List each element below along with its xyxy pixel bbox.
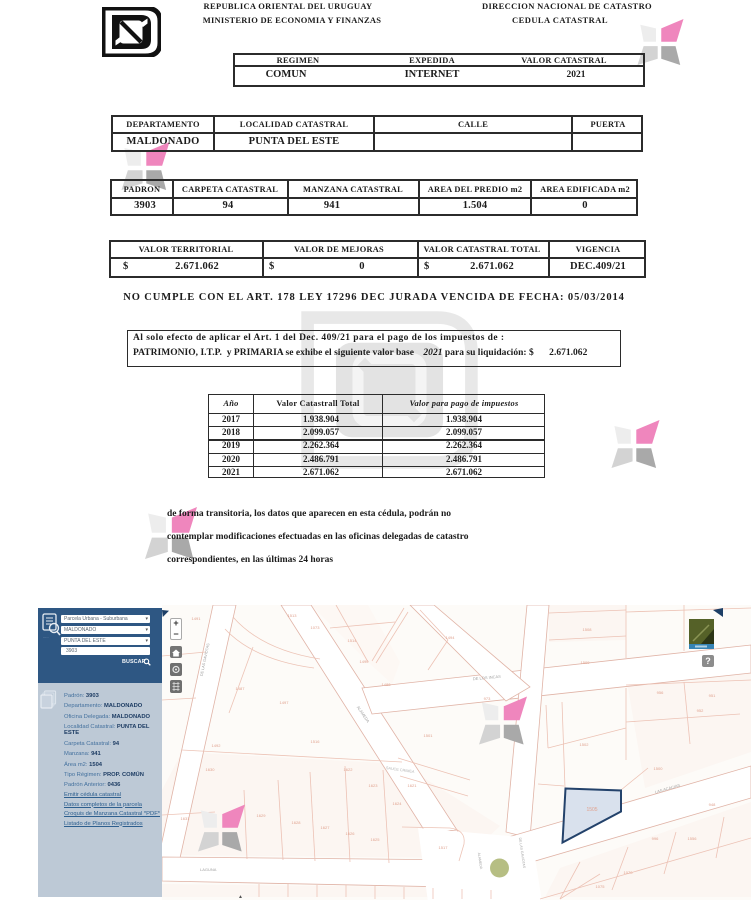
svg-text:951: 951 [709, 693, 716, 698]
svg-text:1517: 1517 [439, 845, 449, 850]
svg-text:1492: 1492 [212, 743, 222, 748]
svg-text:1494: 1494 [446, 635, 456, 640]
svg-text:948: 948 [709, 802, 716, 807]
svg-text:1626: 1626 [346, 831, 356, 836]
svg-text:1630: 1630 [206, 767, 216, 772]
svg-text:1622: 1622 [344, 767, 354, 772]
svg-text:1627: 1627 [321, 825, 331, 830]
svg-text:1488: 1488 [382, 682, 392, 687]
svg-text:1625: 1625 [371, 837, 381, 842]
svg-text:1624: 1624 [393, 801, 403, 806]
svg-text:1631: 1631 [181, 816, 191, 821]
svg-text:1513: 1513 [288, 613, 298, 618]
svg-text:1514: 1514 [348, 638, 358, 643]
svg-text:1491: 1491 [192, 616, 202, 621]
svg-text:1073: 1073 [311, 625, 321, 630]
svg-text:1487: 1487 [236, 686, 246, 691]
svg-text:1623: 1623 [369, 783, 379, 788]
svg-text:1556: 1556 [688, 836, 698, 841]
svg-text:1505: 1505 [586, 807, 597, 813]
svg-text:952: 952 [697, 708, 704, 713]
svg-text:1628: 1628 [292, 820, 302, 825]
svg-text:1490: 1490 [360, 659, 370, 664]
svg-text:1629: 1629 [257, 813, 267, 818]
svg-text:.....: ..... [43, 634, 49, 639]
svg-text:1516: 1516 [311, 739, 321, 744]
svg-text:1500: 1500 [654, 766, 664, 771]
svg-text:▲: ▲ [238, 894, 243, 900]
svg-text:1070: 1070 [624, 870, 634, 875]
svg-text:996: 996 [652, 836, 659, 841]
svg-text:1621: 1621 [408, 783, 418, 788]
svg-text:1508: 1508 [583, 627, 593, 632]
svg-text:1501: 1501 [424, 733, 434, 738]
svg-text:1075: 1075 [596, 884, 606, 889]
svg-text:956: 956 [657, 690, 664, 695]
svg-text:1502: 1502 [580, 742, 590, 747]
svg-text:1497: 1497 [280, 700, 290, 705]
svg-text:LAGUNA: LAGUNA [200, 867, 217, 872]
svg-text:1509: 1509 [581, 660, 591, 665]
